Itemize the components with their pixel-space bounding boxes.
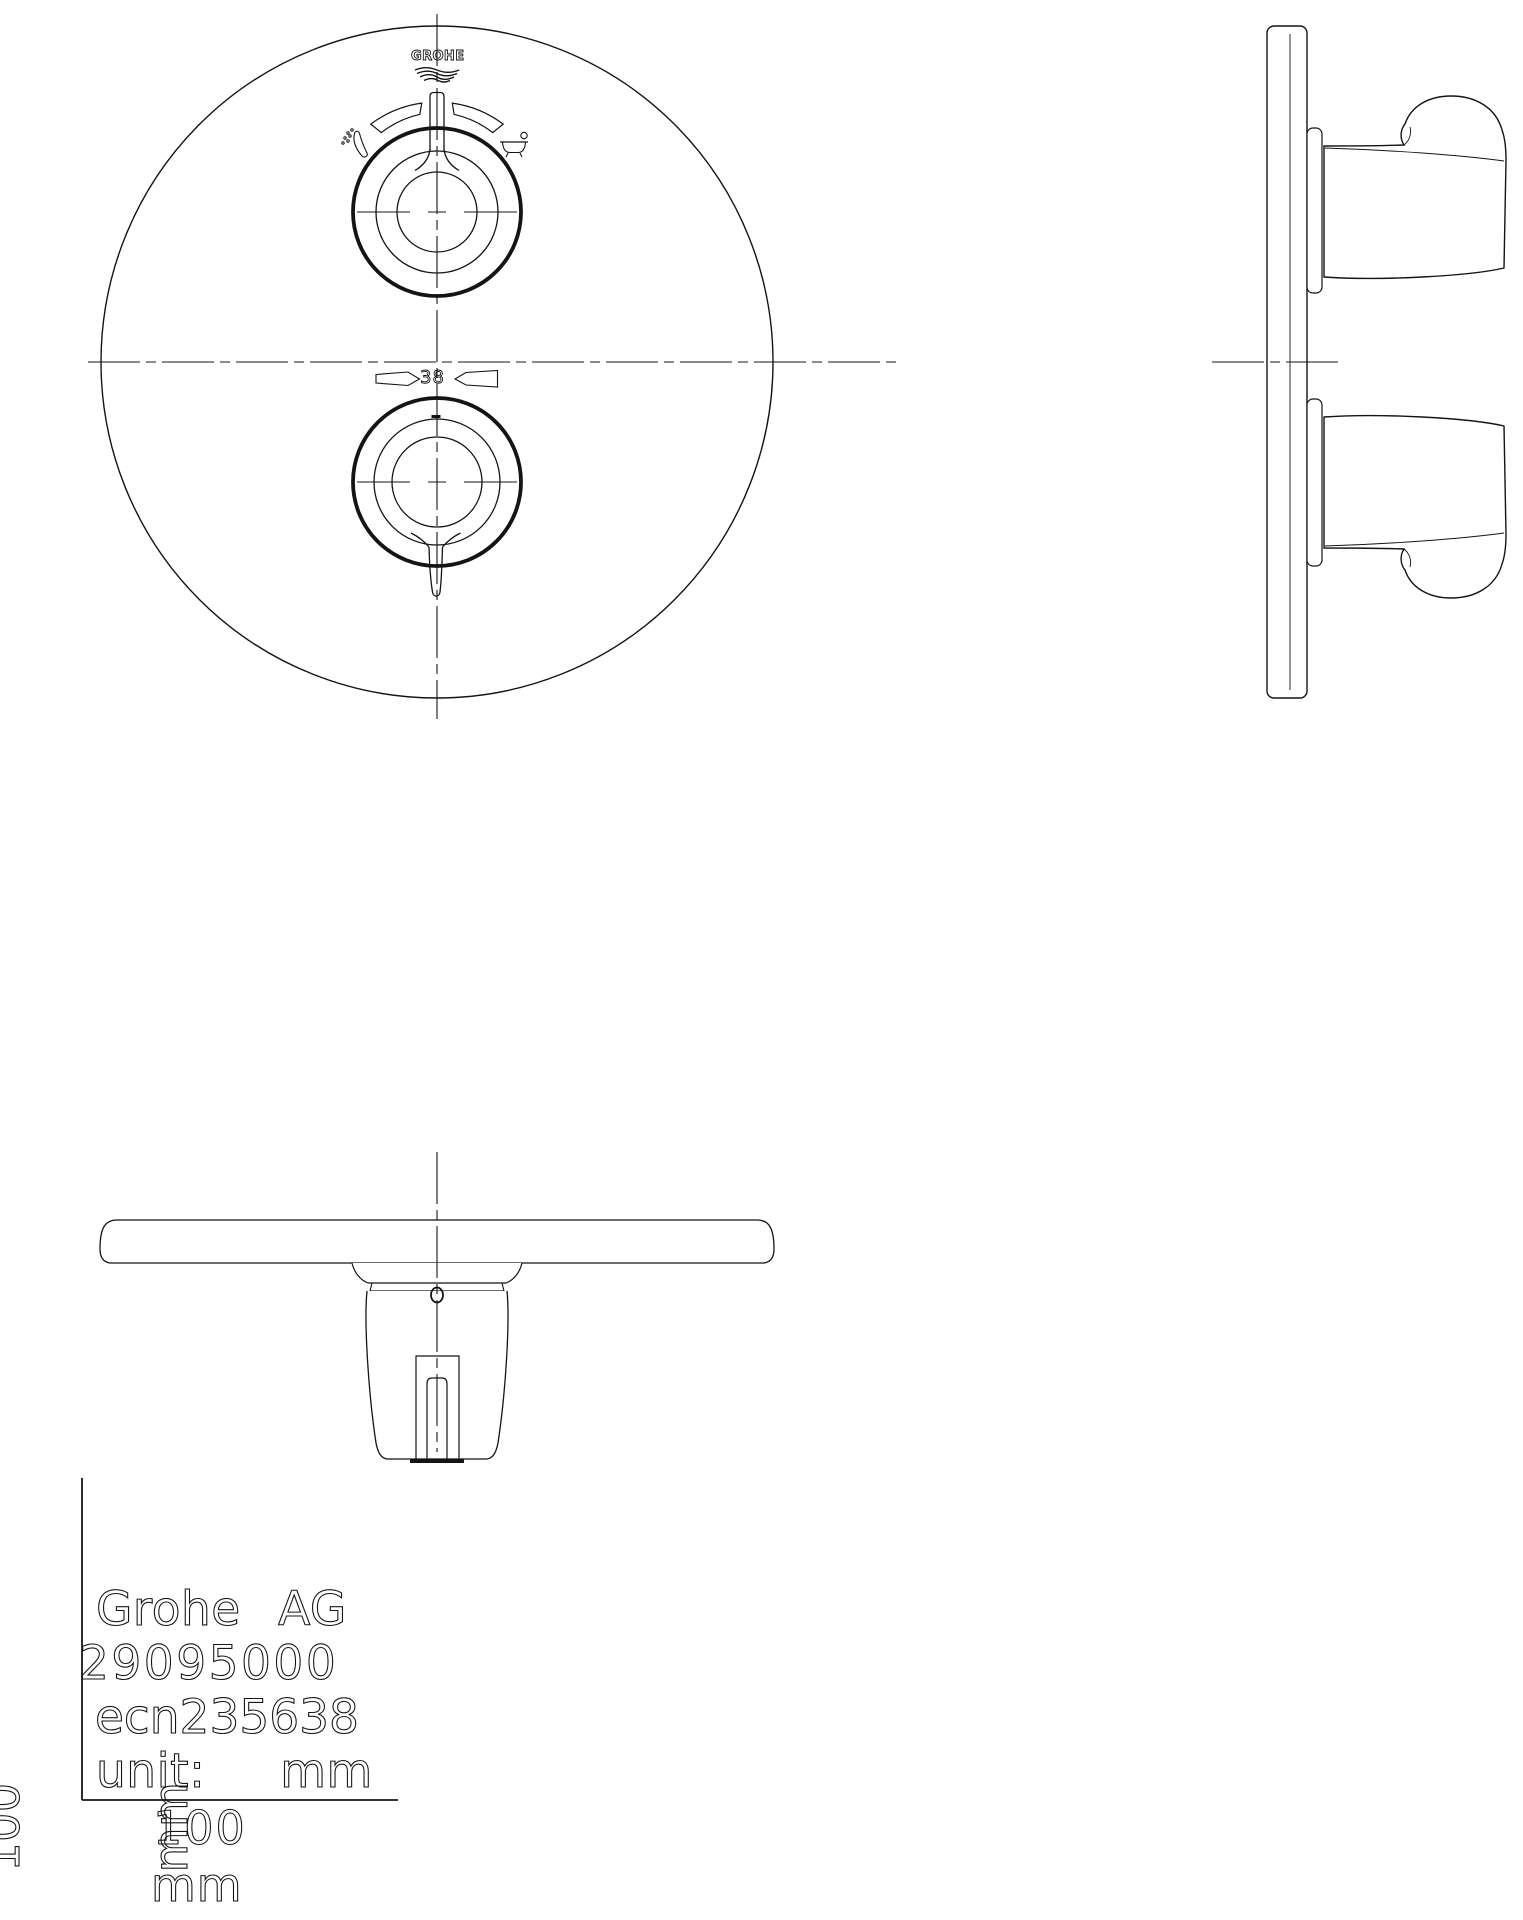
side-collar-bottom (1307, 399, 1322, 566)
side-knob-bottom (1324, 416, 1506, 598)
manufacturer-label: Grohe AG (96, 1585, 347, 1634)
diverter-arc-left (371, 103, 422, 133)
bathtub-icon (500, 132, 528, 157)
temperature-stop-label: 38 (420, 369, 445, 388)
temperature-lever (429, 547, 443, 596)
vertical-scale-unit: mm (143, 1777, 199, 1877)
diverter-arc-right (452, 103, 503, 133)
vertical-scale-label: 100 mm (0, 1777, 255, 1877)
vertical-scale-value: 100 (0, 1777, 31, 1877)
grohe-logo-text: GROHE (411, 50, 465, 64)
ecn-number: ecn235638 (95, 1693, 359, 1742)
hand-shower-icon (342, 129, 368, 157)
cad-drawing-page: GROHE 38 Grohe AG 29095000 ecn235638 uni… (0, 0, 1523, 1920)
side-collar-top (1307, 128, 1322, 293)
product-number: 29095000 (79, 1639, 338, 1688)
grohe-wave-icon (409, 66, 469, 84)
side-knob-top (1324, 96, 1506, 278)
